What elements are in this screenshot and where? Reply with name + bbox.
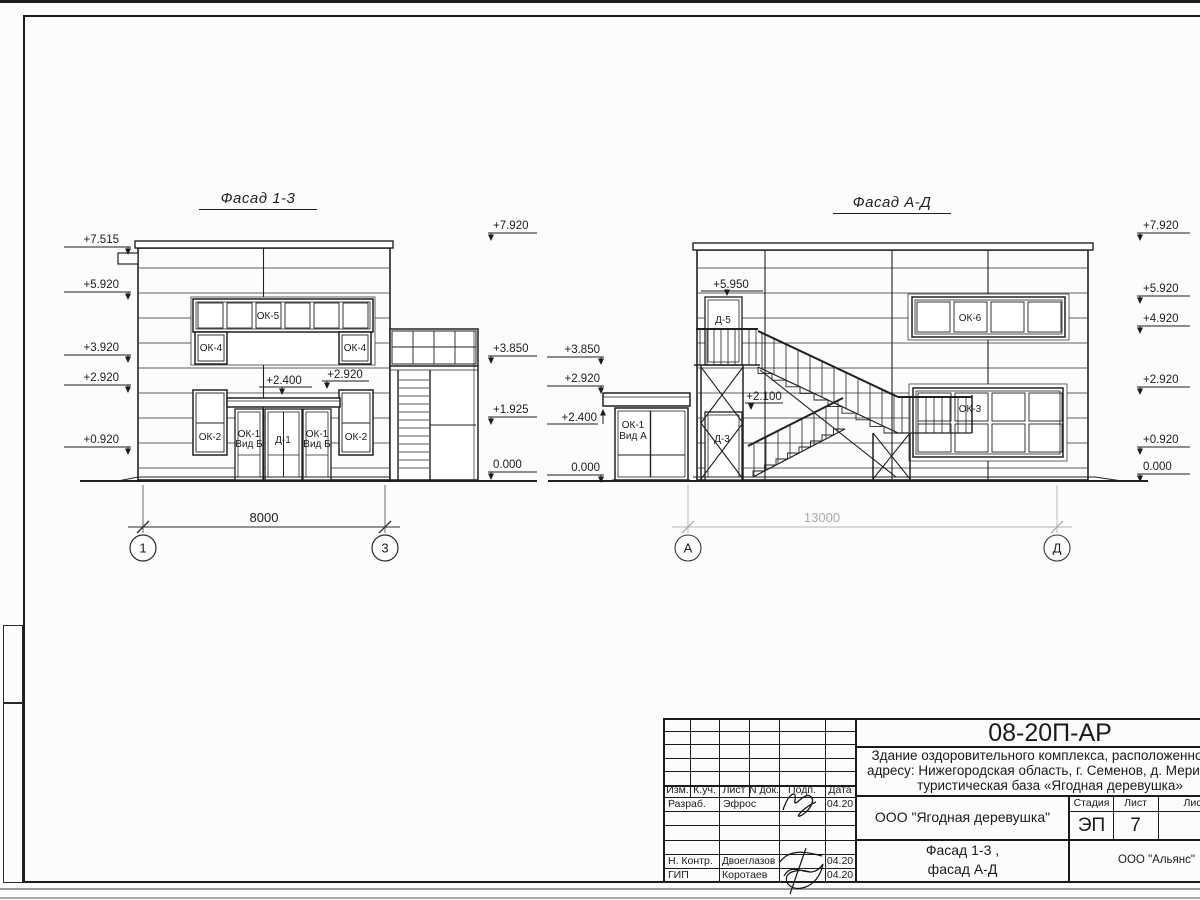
window-label-ok1a-1: ОК-1	[622, 420, 645, 431]
elevation-mark: +1.925	[493, 404, 529, 416]
window-label-ok1-right-2: Вид Б	[303, 439, 331, 450]
elevation-mark: +2.920	[1143, 374, 1179, 386]
tb-date: 04.20	[825, 798, 855, 811]
elevation-mark: +0.920	[84, 434, 120, 446]
tb-name-dvoeglazov: Двоеглазов	[722, 855, 779, 868]
elevation-mark: +2.920	[84, 372, 120, 384]
axis-bubble-d: Д	[1053, 541, 1062, 556]
window-label-ok4-right: ОК-4	[344, 343, 367, 354]
signature-gip	[776, 846, 828, 896]
facadeAD-linework	[548, 243, 1148, 481]
window-label-ok6: ОК-6	[959, 313, 982, 324]
title-block: Изм. К.уч. Лист N док. Подп. Дата Разраб…	[663, 718, 1200, 883]
margin-cell-top	[3, 625, 23, 703]
window-label-ok1-left-2: Вид Б	[235, 439, 263, 450]
tb-desc-line2: адресу: Нижегородская область, г. Семено…	[857, 764, 1200, 778]
door-label-d1: Д-1	[275, 435, 291, 446]
tb-stage-value: ЭП	[1070, 812, 1113, 839]
elevation-callout: +5.950	[713, 279, 749, 291]
tb-col-data: Дата	[825, 785, 855, 797]
axis-bubble-a: А	[684, 541, 693, 556]
tb-sheet-number: 7	[1113, 812, 1158, 839]
dimension-text: 8000	[250, 510, 279, 525]
drawing-sheet: { "facade13": { "title": "Фасад 1-3", "m…	[0, 0, 1200, 900]
axis-bubble-3: 3	[381, 541, 388, 556]
elevation-mark: 0.000	[1143, 461, 1172, 473]
facade13-marks-left: +7.515 +5.920 +3.920 +2.920 +0.920	[64, 234, 131, 454]
window-label-ok4-left: ОК-4	[200, 343, 223, 354]
tb-doc-title-line2: фасад А-Д	[857, 860, 1068, 879]
elevation-mark: +4.920	[1143, 313, 1179, 325]
axis-bubble-1: 1	[139, 541, 146, 556]
tb-date: 04.20	[825, 869, 855, 882]
elevation-mark: +7.515	[84, 234, 120, 246]
tb-desc-line3: туристическая база «Ягодная деревушка»	[857, 779, 1200, 793]
elevation-mark: +0.920	[1143, 434, 1179, 446]
door-label-d5: Д-5	[715, 315, 731, 326]
tb-date: 04.20	[825, 855, 855, 868]
elevation-mark: 0.000	[493, 459, 522, 471]
facadeAD-marks-left: +3.850 +2.920 +2.400 0.000	[547, 344, 604, 482]
elevation-mark: +2.920	[565, 373, 601, 385]
facade13-drawing: ОК-5 ОК-4 ОК-4 ОК-2 ОК-2 ОК-1 Вид Б Д-1 …	[55, 185, 555, 570]
elevation-callout: +2.920	[327, 369, 363, 381]
window-label-ok5: ОК-5	[257, 311, 280, 322]
margin-cell-bottom	[3, 703, 23, 883]
tb-role-gip: ГИП	[668, 869, 718, 882]
window-label-ok1a-2: Вид А	[619, 431, 647, 442]
tb-name-korotaev: Коротаев	[722, 869, 777, 882]
screen-top-edge	[0, 0, 1200, 3]
elevation-mark: +5.920	[1143, 283, 1179, 295]
tb-col-list: Лист	[719, 785, 749, 797]
door-label-d3: Д-3	[714, 434, 730, 445]
tb-document-code: 08-20П-АР	[857, 720, 1200, 746]
tb-doc-title-line1: Фасад 1-3 ,	[857, 841, 1068, 860]
signature-razrab	[780, 788, 824, 818]
facade13-marks-right: +7.920 +3.850 +1.925 0.000	[488, 220, 537, 479]
elevation-callout: +2.100	[746, 391, 782, 403]
facade13-axes: 1 3	[130, 535, 398, 561]
elevation-mark: +2.400	[562, 412, 598, 424]
elevation-mark: +5.920	[84, 279, 120, 291]
tb-name-efros: Эфрос	[723, 798, 778, 811]
facade13-dimension: 8000	[128, 485, 400, 533]
elevation-callout: +2.400	[266, 375, 302, 387]
facadeAD-marks-right: +7.920 +5.920 +4.920 +2.920 +0.920 0.000	[1137, 220, 1190, 481]
elevation-mark: 0.000	[571, 462, 600, 474]
tb-listov-label: Листов	[1158, 796, 1200, 811]
facadeAD-drawing: Д-5 Д-3 ОК-6 ОК-3 ОК-1 Вид А +5.950 +2.1…	[540, 185, 1200, 570]
tb-desc-line1: Здание оздоровительного комплекса, распо…	[857, 749, 1200, 763]
facadeAD-axes: А Д	[675, 535, 1070, 561]
dimension-text: 13000	[804, 510, 840, 525]
facadeAD-dimension: 13000	[672, 485, 1072, 533]
paper-bottom-edge	[0, 888, 1200, 890]
tb-list-label: Лист	[1113, 796, 1158, 811]
tb-role-razrab: Разраб.	[668, 798, 718, 811]
desk-edge-line	[0, 897, 1200, 899]
window-label-ok2-left: ОК-2	[199, 432, 222, 443]
tb-col-izm: Изм.	[665, 785, 690, 797]
tb-org1: ООО "Ягодная деревушка"	[857, 797, 1068, 839]
tb-role-nkontr: Н. Контр.	[668, 855, 720, 868]
elevation-mark: +3.850	[493, 343, 529, 355]
tb-stage-label: Стадия	[1070, 796, 1113, 811]
tb-col-kuch: К.уч.	[690, 785, 719, 797]
window-label-ok3: ОК-3	[959, 404, 982, 415]
window-label-ok2-right: ОК-2	[345, 432, 368, 443]
elevation-mark: +7.920	[493, 220, 529, 232]
elevation-mark: +3.920	[84, 342, 120, 354]
tb-org2: ООО "Альянс"	[1070, 839, 1200, 881]
elevation-mark: +3.850	[565, 344, 601, 356]
elevation-mark: +7.920	[1143, 220, 1179, 232]
tb-col-ndok: N док.	[749, 785, 779, 797]
